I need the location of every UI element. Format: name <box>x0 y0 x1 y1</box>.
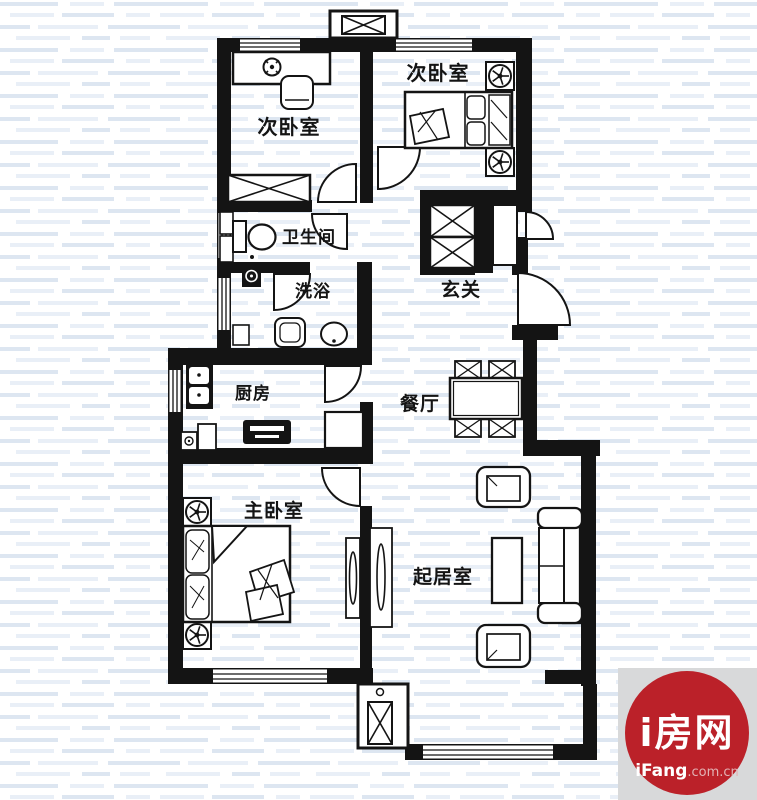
room-label-master: 主卧室 <box>244 499 304 522</box>
wall-entry-bottom <box>512 325 558 340</box>
nightstand <box>183 498 211 526</box>
double-sink <box>186 363 213 409</box>
window-master-bottom <box>213 670 327 683</box>
window-kitchen-left <box>170 370 181 412</box>
dining-chair <box>455 361 481 379</box>
window-living-bottom <box>423 746 553 759</box>
cabinet <box>233 325 249 345</box>
room-label-kitchen: 厨房 <box>235 383 271 404</box>
dining-table <box>450 378 522 419</box>
nightstand <box>486 62 514 90</box>
watermark-brand: i房网 <box>639 711 734 755</box>
shoe-cabinet <box>493 205 517 265</box>
shelf <box>220 212 233 234</box>
floor-plan-image: 次卧室 次卧室 卫生间 洗浴 玄关 厨房 餐厅 主卧室 起居室 i房网 iFan… <box>0 0 757 800</box>
nightstand <box>183 621 211 649</box>
lamp-icon <box>186 501 208 523</box>
room-label-shower: 洗浴 <box>295 281 331 302</box>
wardrobe <box>228 175 310 202</box>
washing-machine <box>242 264 261 287</box>
wall-living-stub <box>545 670 581 684</box>
room-label-bathroom: 卫生间 <box>282 227 336 248</box>
room-label-bedroom-left: 次卧室 <box>258 115 321 139</box>
desk-chair <box>281 76 313 109</box>
utility-platform <box>358 684 408 748</box>
watermark-site-bold: iFang <box>635 761 687 781</box>
quilt <box>410 109 449 144</box>
small-appliance <box>181 432 197 450</box>
desk-lamp-icon <box>264 59 281 76</box>
refrigerator <box>325 412 363 448</box>
wall-bathroom-bottom <box>218 262 310 273</box>
room-label-entry: 玄关 <box>441 278 481 301</box>
armchair <box>477 625 530 667</box>
stove <box>243 420 291 444</box>
nightstand <box>486 148 514 176</box>
dining-chair <box>489 361 515 379</box>
room-label-living: 起居室 <box>412 565 473 588</box>
closet-box <box>430 237 475 268</box>
coffee-table <box>492 538 522 603</box>
watermark-site-suffix: .com.cn <box>687 765 738 780</box>
bay-window <box>330 11 397 38</box>
watermark: i房网 iFang.com.cn <box>618 668 757 800</box>
tv-cabinet-bedroom <box>346 538 360 618</box>
room-label-bedroom-right: 次卧室 <box>407 61 470 85</box>
shower-tray <box>275 318 305 347</box>
wall-closet-left <box>420 193 430 275</box>
floor-plan-svg: 次卧室 次卧室 卫生间 洗浴 玄关 厨房 餐厅 主卧室 起居室 i房网 iFan… <box>0 0 757 800</box>
wall-closet-pillar <box>475 193 493 273</box>
wall-hall-bottom <box>168 348 360 365</box>
sofa <box>538 508 582 623</box>
lamp-icon <box>489 151 511 173</box>
window-top-right <box>396 40 472 51</box>
wall-bedroom-divider <box>360 38 373 203</box>
washbasin <box>321 323 347 346</box>
armchair <box>477 467 530 507</box>
lamp-icon <box>186 624 208 646</box>
window-top-left <box>240 40 300 51</box>
wall-living-right <box>581 445 596 686</box>
cabinet <box>198 424 216 450</box>
wall-dining-right <box>523 340 537 448</box>
lamp-icon <box>489 65 511 87</box>
dining-chair <box>455 419 481 437</box>
window-left-bath-2 <box>219 278 230 330</box>
shelf <box>220 236 233 262</box>
tv-cabinet-living <box>370 528 392 627</box>
single-bed <box>405 92 512 148</box>
dining-chair <box>489 419 515 437</box>
double-bed <box>183 526 294 622</box>
wall-right-upper <box>516 38 532 212</box>
entry-closet <box>430 205 517 268</box>
room-label-dining: 餐厅 <box>400 392 440 415</box>
closet-box <box>430 205 475 237</box>
